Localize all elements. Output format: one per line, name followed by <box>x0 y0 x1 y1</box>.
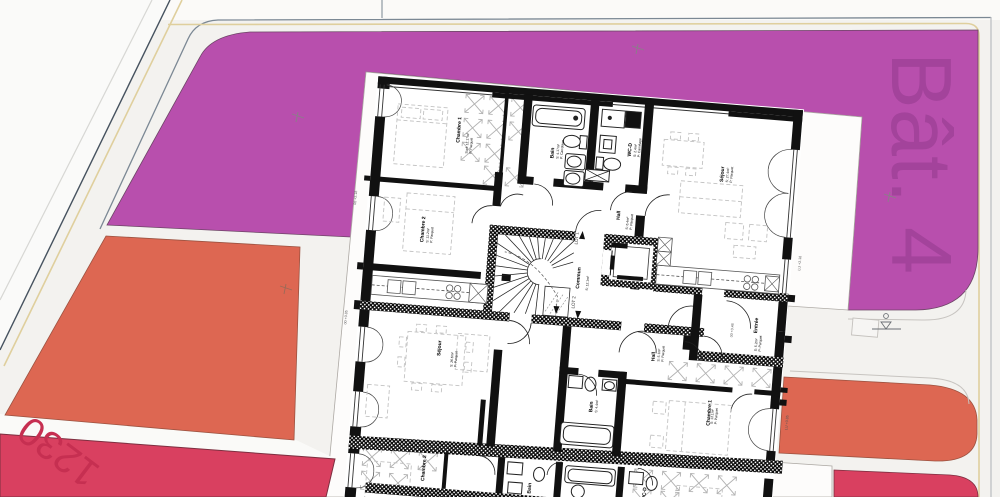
svg-text:LOT 2: LOT 2 <box>570 295 576 308</box>
svg-text:Bât. 4: Bât. 4 <box>873 52 968 274</box>
svg-text:Hall: Hall <box>616 210 623 220</box>
svg-text:WC-D: WC-D <box>641 487 648 497</box>
svg-text:Séjour: Séjour <box>436 340 443 356</box>
svg-text:Bain: Bain <box>526 483 533 494</box>
svg-text:Entrée: Entrée <box>753 317 760 333</box>
svg-text:LOT 1: LOT 1 <box>574 231 580 244</box>
